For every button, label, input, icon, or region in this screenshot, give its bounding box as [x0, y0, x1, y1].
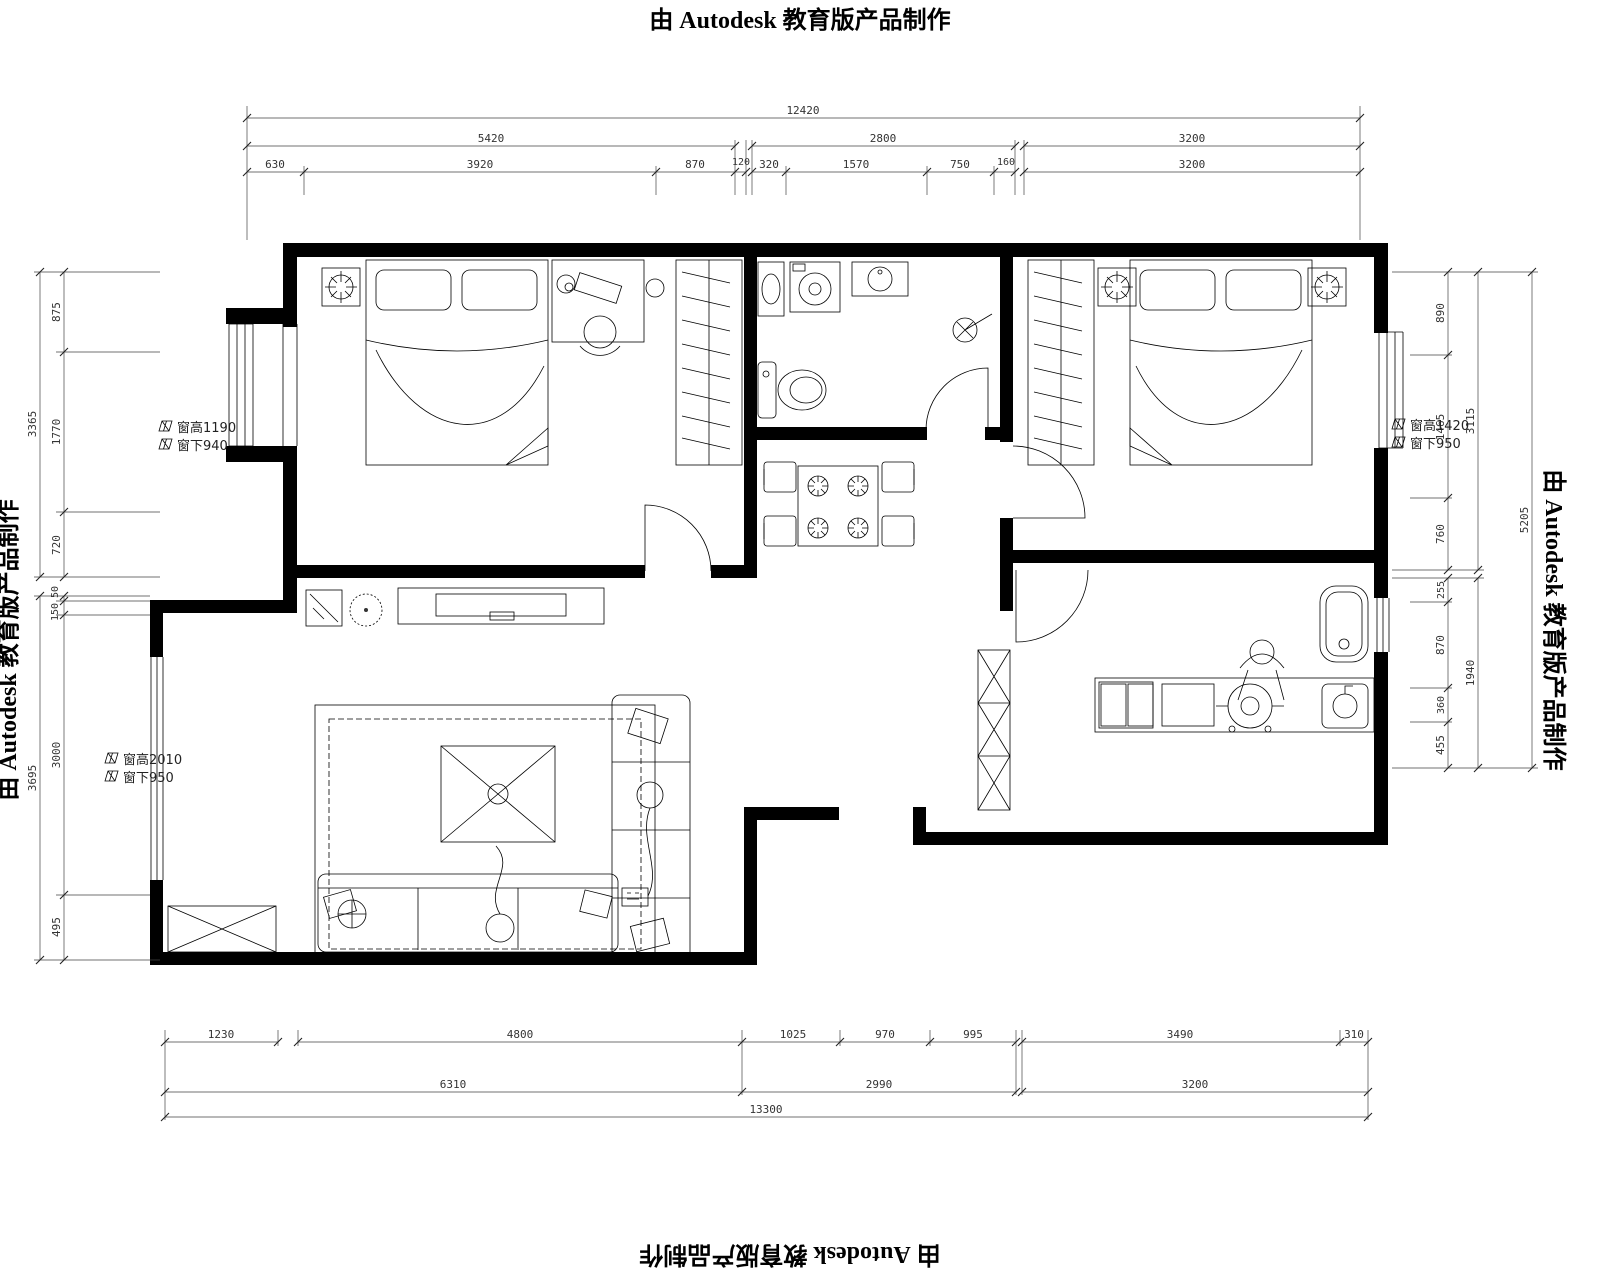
dim-bottom-total: 13300 [749, 1103, 782, 1116]
window-note-line: 窗高1420 [1410, 418, 1469, 434]
dim-top-minor: 3920 [467, 158, 494, 171]
door-arc-kitchen [1016, 570, 1088, 642]
dim-right-minor: 360 [1436, 696, 1447, 714]
dining-set [764, 462, 914, 546]
bedroom2-furniture [1028, 260, 1346, 465]
door-arc-bedroom1 [645, 505, 711, 571]
dim-right-minor: 255 [1436, 581, 1447, 599]
walls [150, 243, 1388, 965]
dim-chain-top: 12420 5420 2800 3200 630 3920 870 120 32… [243, 104, 1364, 240]
dim-bottom-minor: 1230 [208, 1028, 235, 1041]
watermark-bottom: 由 Autodesk 教育版产品制作 [639, 1241, 940, 1269]
dim-top-minor: 750 [950, 158, 970, 171]
dim-top-minor: 870 [685, 158, 705, 171]
door-arc-bathroom [926, 368, 988, 430]
watermark-right: 由 Autodesk 教育版产品制作 [1540, 469, 1568, 770]
dim-left-major: 3695 [26, 765, 39, 792]
bay-window-bedroom1 [229, 324, 297, 446]
dim-right-major: 1940 [1464, 660, 1477, 687]
window-note-line: 窗下950 [1410, 436, 1461, 452]
window-note-line: 窗高2010 [123, 752, 182, 768]
dim-left-minor: 3000 [50, 742, 63, 769]
window-note-bedroom2: 窗高1420 窗下950 [1392, 418, 1469, 452]
dim-right-minor: 870 [1434, 635, 1447, 655]
dim-left-minor: 1770 [50, 419, 63, 446]
dim-top-minor: 630 [265, 158, 285, 171]
dim-bottom-minor: 1025 [780, 1028, 807, 1041]
dim-right-minor: 890 [1434, 303, 1447, 323]
dim-bottom-major: 2990 [866, 1078, 893, 1091]
window-note-living: 窗高2010 窗下950 [105, 752, 182, 786]
bedroom1-furniture [322, 260, 742, 465]
hall-cabinet [978, 650, 1010, 810]
dim-left-minor: 495 [50, 917, 63, 937]
dim-top-minor: 320 [759, 158, 779, 171]
dim-left-major: 3365 [26, 411, 39, 438]
dim-chain-right: 890 1465 760 255 870 360 455 3115 1940 5… [1392, 268, 1538, 772]
dim-left-minor: 720 [50, 535, 63, 555]
watermark-left: 由 Autodesk 教育版产品制作 [0, 499, 22, 800]
dim-chain-bottom: 1230 4800 1025 970 995 3490 310 6310 299… [161, 1028, 1372, 1121]
door-arc-bedroom2 [1013, 446, 1085, 518]
dim-left-minor: 150 [50, 603, 61, 621]
kitchen-fixtures [1095, 586, 1374, 732]
window-kitchen [1377, 598, 1389, 652]
dim-top-minor: 160 [997, 157, 1015, 168]
dim-top-minor: 3200 [1179, 158, 1206, 171]
window-note-line: 窗高1190 [177, 420, 236, 436]
bathroom-fixtures [758, 262, 992, 418]
bay-window-living [151, 657, 163, 880]
dim-right-minor: 760 [1434, 524, 1447, 544]
dim-bottom-minor: 310 [1344, 1028, 1364, 1041]
dim-right-minor: 455 [1434, 735, 1447, 755]
dim-top-total: 12420 [786, 104, 819, 117]
dim-top-major: 2800 [870, 132, 897, 145]
dim-bottom-minor: 970 [875, 1028, 895, 1041]
dim-left-minor: 50 [50, 586, 61, 598]
dim-top-major: 5420 [478, 132, 505, 145]
dim-top-minor: 120 [732, 157, 750, 168]
dim-bottom-minor: 3490 [1167, 1028, 1194, 1041]
bay-window-bedroom2 [1379, 332, 1403, 448]
dim-top-minor: 1570 [843, 158, 870, 171]
dim-top-major: 3200 [1179, 132, 1206, 145]
dim-bottom-major: 6310 [440, 1078, 467, 1091]
watermark-top: 由 Autodesk 教育版产品制作 [649, 6, 950, 34]
window-note-bedroom1: 窗高1190 窗下940 [159, 420, 236, 454]
floor-plan-canvas: 由 Autodesk 教育版产品制作 由 Autodesk 教育版产品制作 由 … [0, 0, 1600, 1280]
dim-left-minor: 875 [50, 302, 63, 322]
window-note-line: 窗下940 [177, 438, 228, 454]
dim-bottom-minor: 4800 [507, 1028, 534, 1041]
living-room-furniture [168, 588, 690, 963]
window-note-line: 窗下950 [123, 770, 174, 786]
dim-bottom-minor: 995 [963, 1028, 983, 1041]
dim-right-total: 5205 [1518, 507, 1531, 534]
dim-chain-left: 875 1770 720 50 150 3000 495 3365 3695 [26, 268, 160, 964]
dim-bottom-major: 3200 [1182, 1078, 1209, 1091]
